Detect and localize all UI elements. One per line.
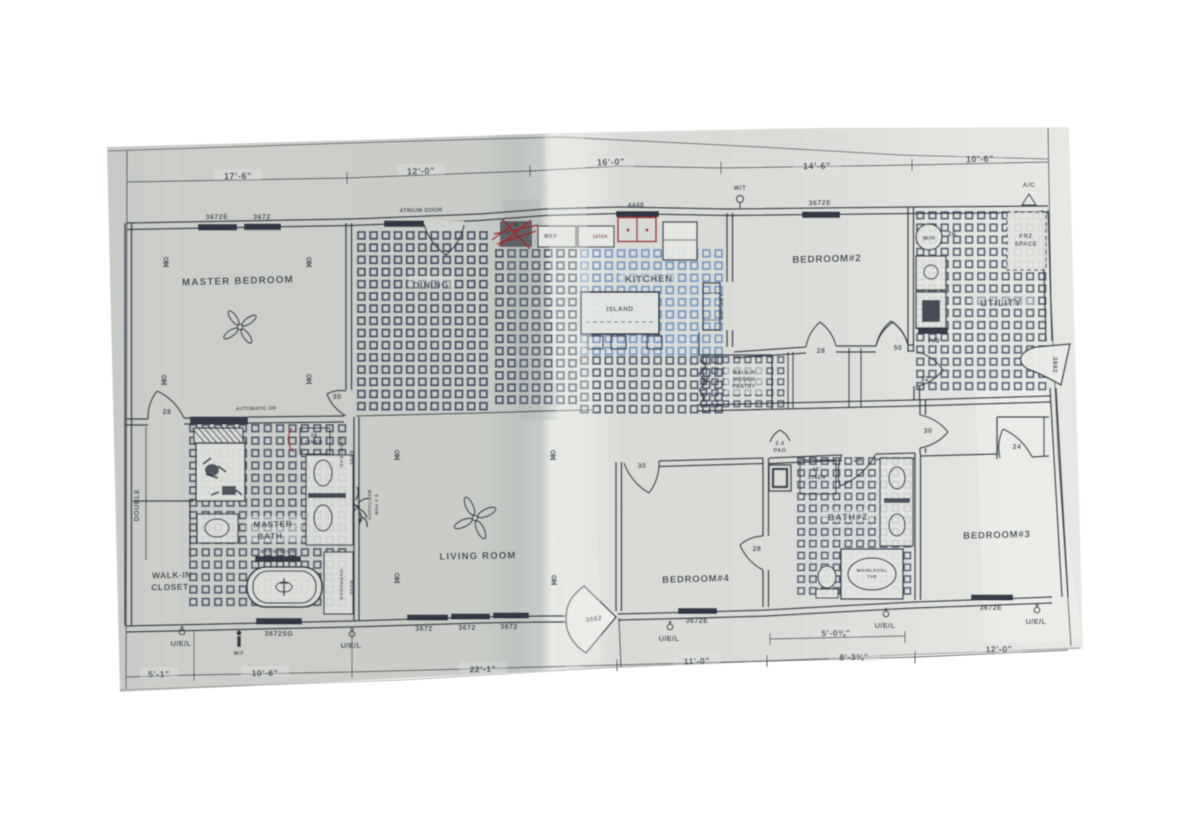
svg-text:UTILITY: UTILITY	[980, 298, 1022, 310]
svg-text:3672E: 3672E	[980, 605, 1003, 612]
svg-text:28: 28	[702, 375, 710, 382]
svg-text:3672SG: 3672SG	[265, 631, 294, 638]
svg-text:WALK-N: WALK-N	[733, 370, 756, 376]
svg-text:10’-6”: 10’-6”	[966, 154, 994, 164]
svg-text:W/T: W/T	[734, 186, 747, 192]
svg-text:22’-1”: 22’-1”	[469, 664, 496, 675]
svg-text:3672E: 3672E	[809, 200, 832, 207]
svg-text:BAY WINDOW: BAY WINDOW	[260, 549, 295, 554]
svg-text:3672: 3672	[415, 626, 433, 633]
svg-text:U/E/L: U/E/L	[1026, 617, 1047, 626]
svg-text:30: 30	[638, 463, 647, 470]
svg-text:3672E: 3672E	[206, 214, 229, 221]
svg-text:8’-3¾”: 8’-3¾”	[839, 652, 868, 663]
svg-text:U/E/L: U/E/L	[341, 641, 362, 650]
svg-text:PANTRY: PANTRY	[733, 384, 756, 390]
svg-text:24: 24	[1013, 444, 1022, 451]
svg-text:TUB: TUB	[867, 574, 877, 579]
svg-text:BASE: BASE	[348, 580, 354, 596]
svg-text:BEDROOM#2: BEDROOM#2	[792, 253, 862, 266]
svg-text:12’-0”: 12’-0”	[407, 166, 435, 177]
svg-text:5’-0¾”: 5’-0¾”	[821, 628, 850, 639]
svg-text:32: 32	[921, 376, 930, 383]
svg-text:26: 26	[948, 231, 957, 238]
svg-text:P/9: P/9	[928, 338, 940, 345]
svg-text:9 X POM: 9 X POM	[374, 495, 379, 516]
svg-text:WHIRLPOOL: WHIRLPOOL	[857, 568, 888, 573]
svg-text:28: 28	[817, 348, 826, 355]
svg-text:MASTER: MASTER	[253, 519, 292, 530]
svg-text:BASE: BASE	[348, 450, 354, 466]
svg-text:50: 50	[894, 345, 903, 352]
svg-text:16’: 16’	[813, 467, 822, 473]
svg-text:A/C: A/C	[1023, 182, 1036, 189]
svg-text:WALK-IN: WALK-IN	[152, 570, 192, 581]
svg-text:28: 28	[163, 409, 172, 416]
svg-text:W/F: W/F	[234, 651, 245, 657]
svg-text:5’-1”: 5’-1”	[148, 669, 170, 679]
svg-text:ISLAND: ISLAND	[606, 306, 633, 313]
svg-text:4448: 4448	[628, 202, 645, 209]
svg-text:17’-6”: 17’-6”	[224, 171, 252, 181]
svg-text:AUTOMATIC DR: AUTOMATIC DR	[236, 406, 277, 413]
svg-text:3672: 3672	[458, 625, 476, 632]
svg-text:PAG: PAG	[773, 448, 786, 454]
svg-text:BATH: BATH	[257, 531, 282, 541]
svg-text:OVERHEAD: OVERHEAD	[338, 436, 344, 467]
svg-text:FRZ: FRZ	[1019, 234, 1032, 240]
svg-text:LINEN: LINEN	[305, 440, 323, 446]
svg-text:3882: 3882	[1051, 357, 1058, 373]
svg-text:3672: 3672	[500, 624, 518, 631]
svg-text:30: 30	[333, 394, 342, 401]
svg-text:ARCHED: ARCHED	[717, 293, 723, 321]
svg-text:BEDROOM#3: BEDROOM#3	[963, 529, 1031, 542]
svg-text:LINEN: LINEN	[808, 475, 826, 481]
svg-text:3672: 3672	[253, 214, 271, 221]
svg-text:KITCHEN: KITCHEN	[625, 274, 673, 286]
svg-text:W/H: W/H	[923, 236, 935, 242]
svg-text:28: 28	[753, 546, 762, 553]
svg-text:24: 24	[311, 433, 318, 439]
svg-text:2.4: 2.4	[775, 441, 785, 447]
svg-text:1072/4: 1072/4	[593, 234, 608, 240]
svg-text:U/E/L: U/E/L	[875, 621, 896, 630]
svg-text:LIVING ROOM: LIVING ROOM	[439, 550, 516, 562]
svg-text:U/E/L: U/E/L	[659, 634, 680, 643]
svg-text:OVERHEAD: OVERHEAD	[338, 569, 344, 600]
svg-text:SPACE: SPACE	[1015, 242, 1038, 248]
svg-text:ATRIUM DOOR: ATRIUM DOOR	[399, 208, 443, 215]
svg-text:BEDROOM#4: BEDROOM#4	[662, 573, 730, 586]
svg-text:CLOSET: CLOSET	[151, 582, 189, 593]
svg-text:28: 28	[854, 457, 863, 464]
svg-text:U/E/L: U/E/L	[171, 639, 192, 648]
svg-text:16’-0”: 16’-0”	[597, 157, 625, 168]
svg-text:3672E: 3672E	[686, 618, 709, 625]
svg-text:14’-6”: 14’-6”	[803, 161, 831, 171]
svg-text:30: 30	[924, 428, 933, 435]
svg-text:BATH#2: BATH#2	[828, 512, 869, 523]
svg-text:11’-0”: 11’-0”	[684, 656, 710, 667]
svg-text:DINING: DINING	[413, 280, 449, 291]
svg-text:WET/TOUCH: WET/TOUCH	[367, 490, 372, 520]
svg-text:HIDDEN: HIDDEN	[733, 377, 755, 383]
svg-text:12’-0”: 12’-0”	[986, 644, 1013, 654]
svg-text:DOUBLE: DOUBLE	[134, 489, 141, 522]
svg-text:10’-6”: 10’-6”	[252, 668, 279, 678]
